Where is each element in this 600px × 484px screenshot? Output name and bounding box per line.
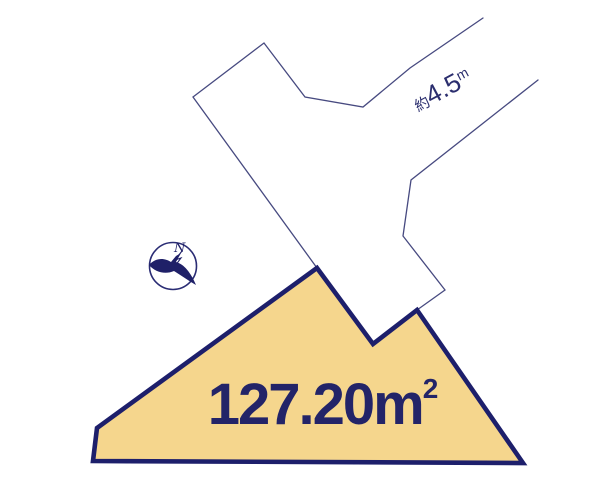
land-plot-diagram: N 127.20m2 約4.5m	[0, 0, 600, 484]
road-outline-left	[193, 18, 483, 268]
plot-area-unit: m	[373, 372, 423, 437]
road-width-label: 約4.5m	[407, 61, 477, 117]
compass: N	[149, 241, 197, 290]
road-outline-right	[403, 80, 538, 310]
plot-area-value: 127.20	[208, 372, 373, 437]
compass-north-label: N	[173, 241, 186, 256]
plot-area-label: 127.20m2	[208, 372, 439, 437]
diagram-canvas: N 127.20m2 約4.5m	[0, 0, 600, 484]
plot-area-exponent: 2	[423, 373, 439, 404]
